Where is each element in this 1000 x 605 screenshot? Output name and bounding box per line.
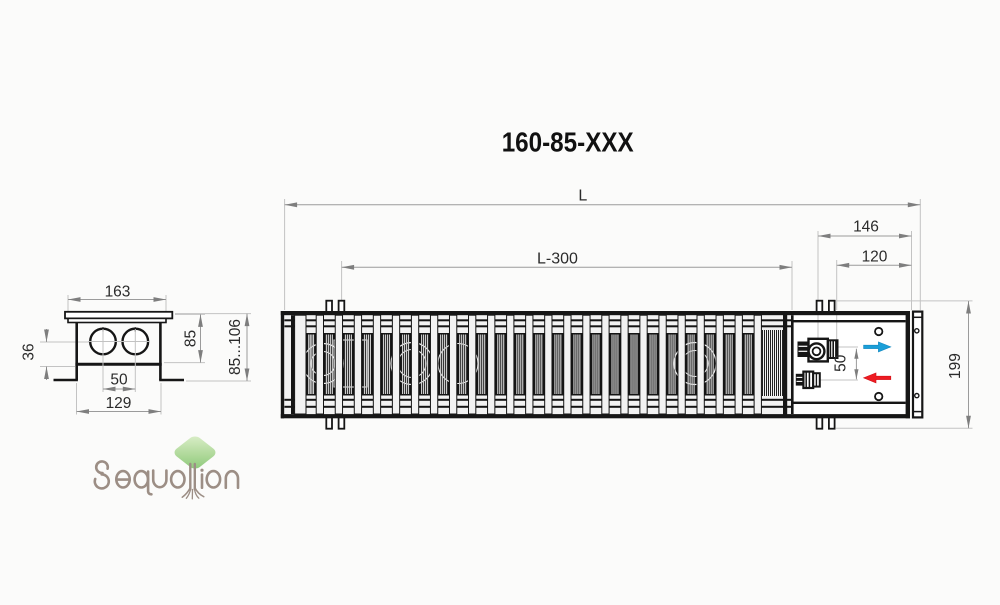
svg-text:85: 85 — [183, 330, 200, 347]
svg-text:36: 36 — [21, 343, 38, 360]
svg-text:85...106: 85...106 — [227, 319, 244, 375]
svg-text:L-300: L-300 — [537, 250, 578, 267]
svg-text:120: 120 — [862, 249, 888, 266]
svg-text:160-85-XXX: 160-85-XXX — [502, 127, 635, 158]
svg-text:146: 146 — [853, 219, 879, 236]
svg-text:199: 199 — [947, 353, 964, 379]
svg-text:129: 129 — [106, 395, 132, 412]
svg-text:50: 50 — [110, 372, 128, 389]
svg-text:163: 163 — [105, 284, 131, 301]
svg-text:L: L — [578, 188, 587, 205]
svg-text:50: 50 — [833, 354, 850, 372]
